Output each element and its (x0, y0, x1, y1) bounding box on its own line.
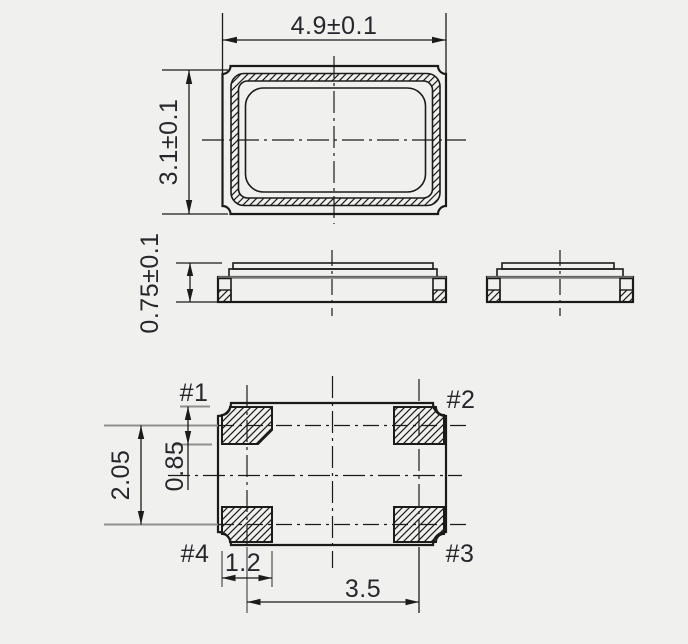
dim-pad-width: 1.2 (222, 547, 272, 613)
arrowhead-left (247, 599, 261, 605)
dim-pad-height: 0.85 (161, 407, 212, 492)
dim-width-label: 4.9±0.1 (291, 12, 378, 40)
bottom-view-land-pattern: #1 #2 #3 #4 (168, 376, 475, 568)
dim-height-label: 3.1±0.1 (155, 99, 183, 186)
dim-pad-height-label: 0.85 (161, 441, 189, 492)
right-side-view (487, 250, 633, 316)
dim-thickness: 0.75±0.1 (136, 232, 222, 333)
dim-col-pitch-label: 3.5 (345, 575, 381, 603)
arrowhead-up (138, 426, 144, 440)
arrowhead-down (187, 289, 193, 302)
arrowhead-up (187, 263, 193, 276)
terminal-hatch-right (620, 290, 633, 302)
arrowhead-down (138, 511, 144, 525)
terminal-hatch-right (433, 290, 446, 302)
dim-thickness-label: 0.75±0.1 (136, 232, 164, 333)
lid-top (233, 263, 433, 269)
terminal-hatch-left (218, 290, 231, 302)
pad-2-label: #2 (447, 386, 476, 414)
lid-flange (229, 269, 437, 277)
arrowhead-down (186, 200, 192, 214)
arrowhead-right (432, 37, 446, 43)
pad-3-label: #3 (446, 540, 475, 568)
package-dimension-drawing: 4.9±0.1 3.1±0.1 0.75±0.1 (0, 0, 688, 644)
dim-pad-width-label: 1.2 (225, 549, 261, 577)
dim-overall-height: 3.1±0.1 (155, 70, 228, 214)
dim-row-pitch-label: 2.05 (107, 450, 135, 501)
arrowhead-up (185, 407, 191, 421)
arrowhead-up (186, 70, 192, 84)
front-side-view (218, 250, 446, 316)
pad-4-label: #4 (181, 540, 210, 568)
arrowhead-left (223, 37, 237, 43)
arrowhead-right (406, 599, 420, 605)
top-view (202, 56, 466, 224)
drawing-svg: 4.9±0.1 3.1±0.1 0.75±0.1 (0, 0, 688, 644)
lid-top (502, 263, 614, 269)
terminal-hatch-left (487, 290, 500, 302)
pad-1-label: #1 (180, 379, 209, 407)
